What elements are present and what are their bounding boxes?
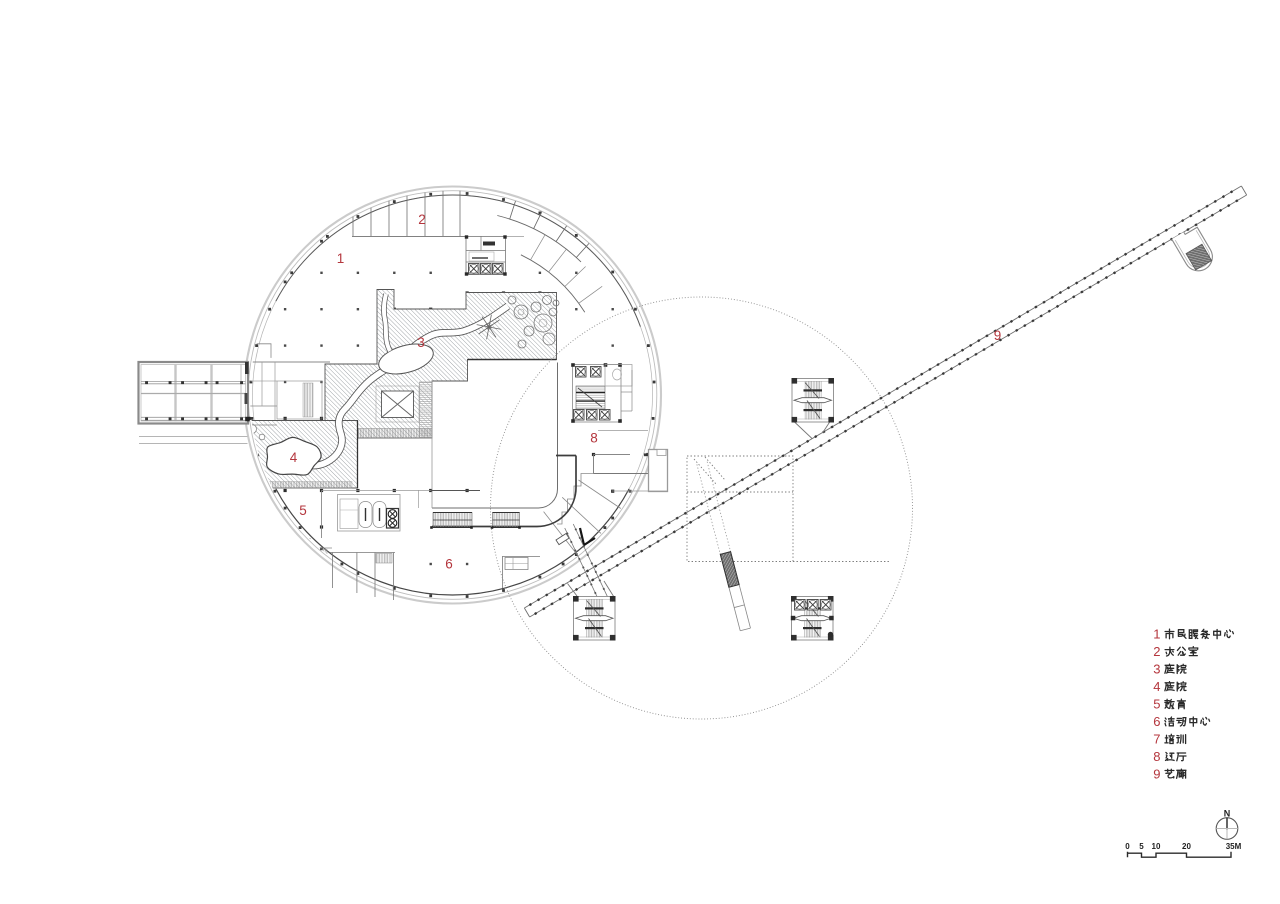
svg-text:2: 2 xyxy=(1153,644,1160,659)
svg-text:0: 0 xyxy=(1125,842,1130,851)
svg-text:4: 4 xyxy=(1153,679,1160,694)
svg-text:9: 9 xyxy=(994,328,1002,343)
svg-text:3: 3 xyxy=(417,335,425,350)
svg-text:5: 5 xyxy=(1139,842,1144,851)
svg-text:8: 8 xyxy=(1153,749,1160,764)
svg-text:4: 4 xyxy=(290,450,298,465)
svg-text:3: 3 xyxy=(1153,661,1160,676)
svg-text:6: 6 xyxy=(1153,714,1160,729)
svg-text:20: 20 xyxy=(1182,842,1191,851)
svg-text:N: N xyxy=(1224,809,1231,819)
svg-text:7: 7 xyxy=(1153,731,1160,746)
svg-text:9: 9 xyxy=(1153,766,1160,781)
svg-text:1: 1 xyxy=(337,251,345,266)
svg-text:8: 8 xyxy=(590,431,598,446)
svg-text:5: 5 xyxy=(1153,696,1160,711)
svg-text:6: 6 xyxy=(445,557,453,572)
svg-text:5: 5 xyxy=(299,503,307,518)
svg-text:1: 1 xyxy=(1153,626,1160,641)
svg-text:10: 10 xyxy=(1152,842,1161,851)
svg-text:35M: 35M xyxy=(1226,842,1242,851)
svg-text:2: 2 xyxy=(418,212,426,227)
